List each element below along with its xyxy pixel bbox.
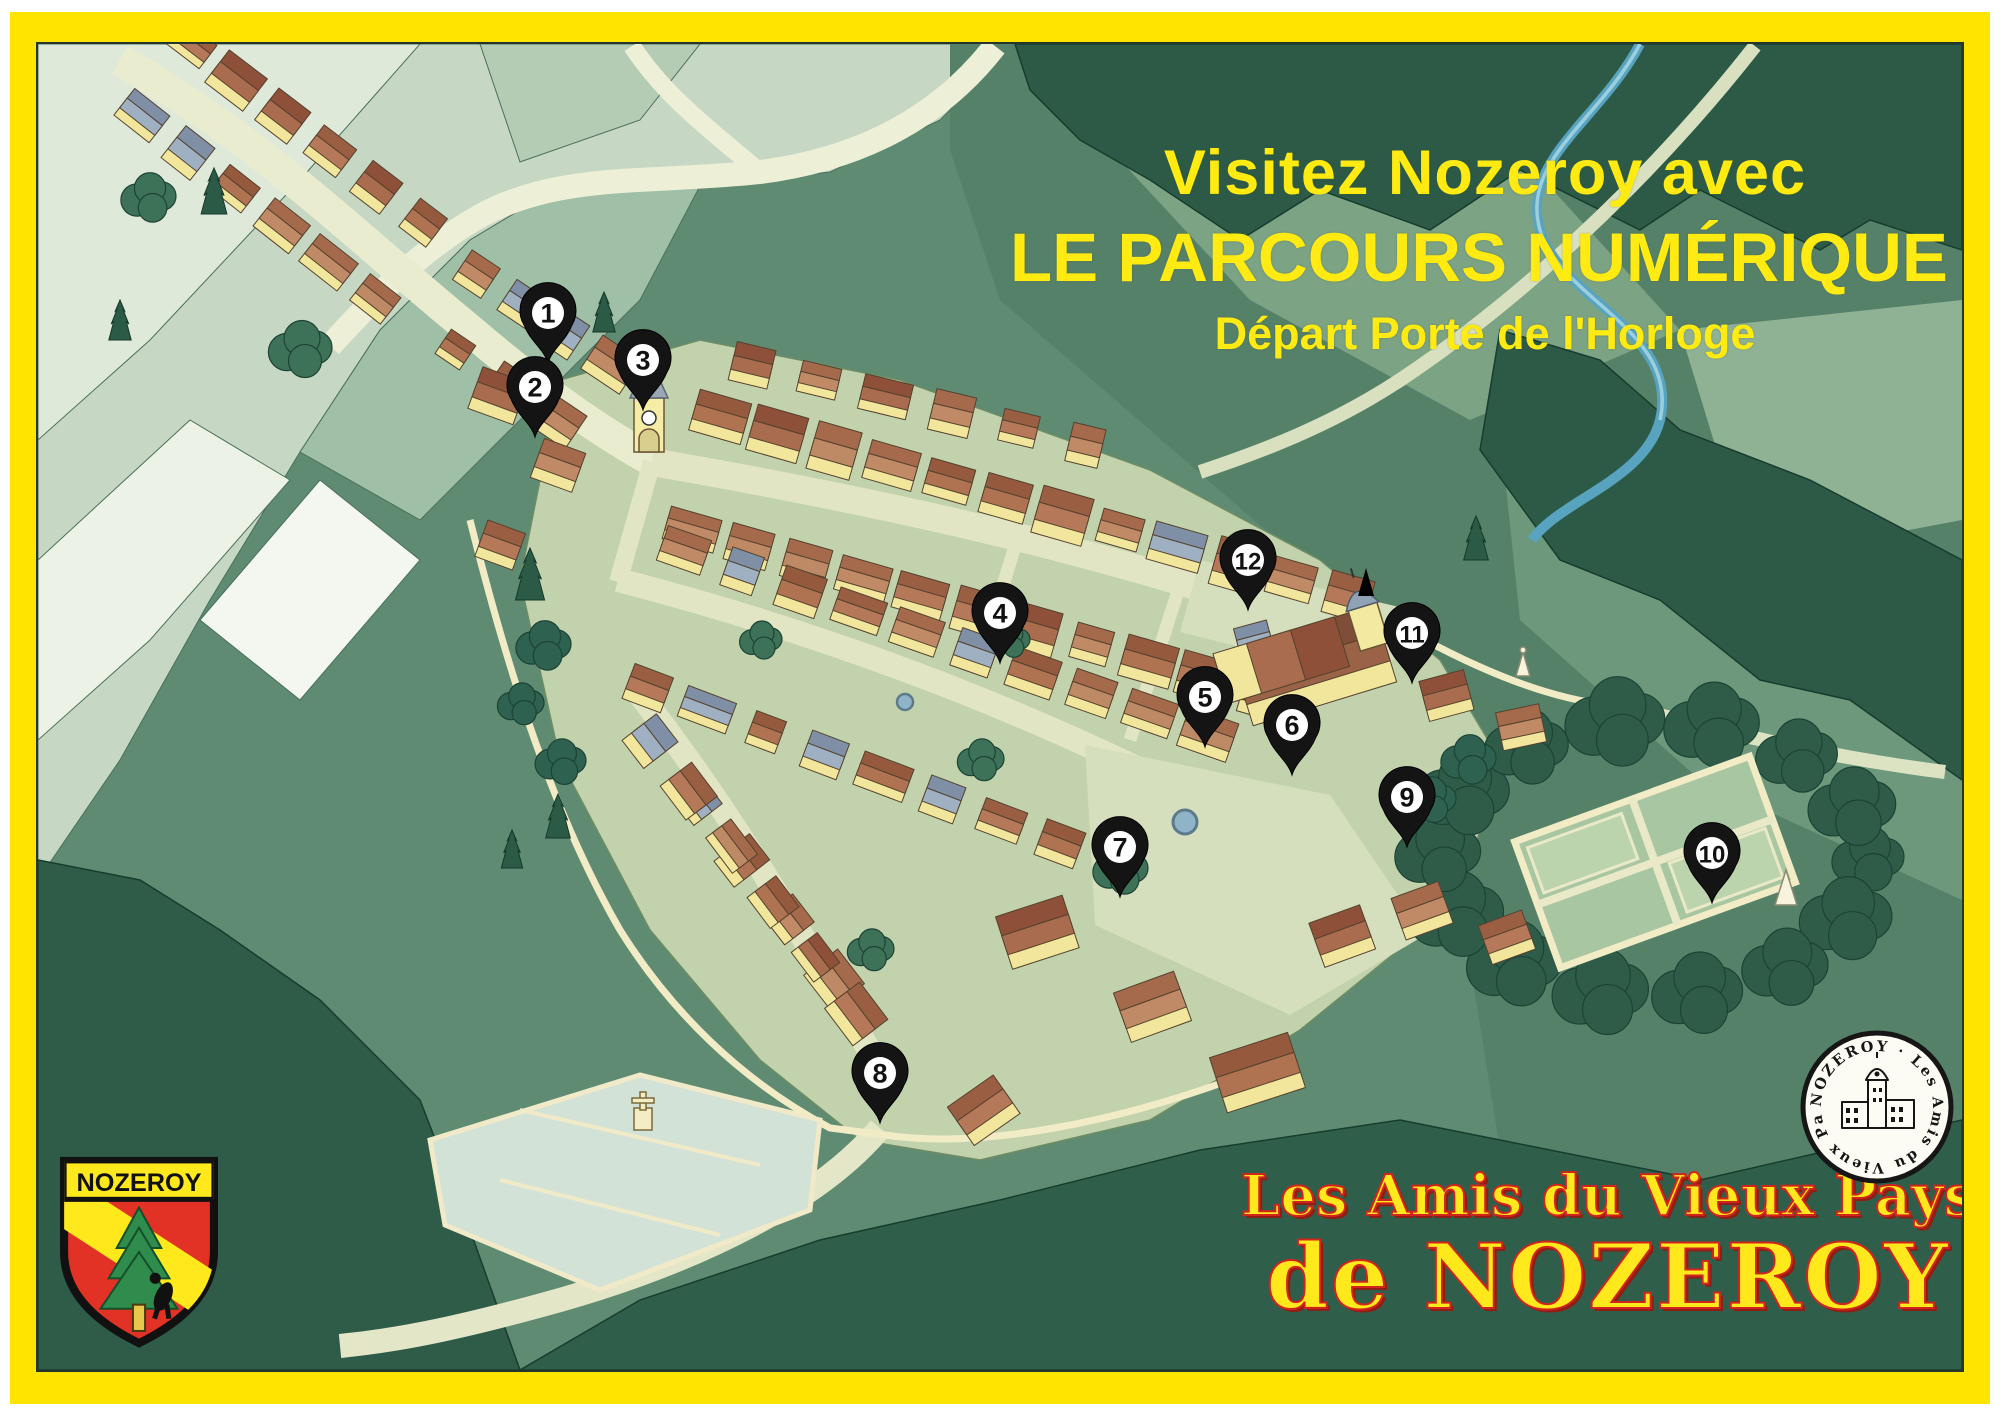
nozeroy-tour-poster: 1 2 3 4 5 6 7 8 9 10 11 12: [0, 0, 2000, 1414]
svg-text:9: 9: [1399, 783, 1414, 813]
title-line-2: LE PARCOURS NUMÉRIQUE !: [1010, 221, 1960, 294]
association-signature: Les Amis du Vieux Pays de NOZEROY: [1238, 1168, 1962, 1322]
svg-text:3: 3: [635, 346, 650, 376]
title-line-3: Départ Porte de l'Horloge: [1010, 310, 1960, 358]
village-map: 1 2 3 4 5 6 7 8 9 10 11 12: [38, 44, 1962, 1370]
shield-label: NOZEROY: [76, 1169, 201, 1197]
svg-text:10: 10: [1699, 842, 1726, 869]
svg-text:5: 5: [1197, 683, 1212, 713]
svg-text:7: 7: [1112, 833, 1127, 863]
svg-text:12: 12: [1235, 549, 1262, 576]
title-line-1: Visitez Nozeroy avec: [1010, 140, 1960, 207]
association-seal: NOZEROY · Les Amis du Vieux Pays de: [1798, 1028, 1956, 1186]
svg-text:6: 6: [1284, 711, 1299, 741]
svg-text:11: 11: [1399, 622, 1424, 649]
poster-title: Visitez Nozeroy avec LE PARCOURS NUMÉRIQ…: [1010, 140, 1960, 358]
svg-text:2: 2: [527, 373, 542, 403]
association-line-2: de NOZEROY: [1238, 1232, 1962, 1322]
nozeroy-coat-of-arms: NOZEROY: [58, 1154, 220, 1350]
svg-text:4: 4: [992, 599, 1007, 629]
svg-text:8: 8: [872, 1059, 887, 1089]
svg-text:1: 1: [540, 299, 555, 329]
shield-tree-trunk: [133, 1305, 145, 1331]
